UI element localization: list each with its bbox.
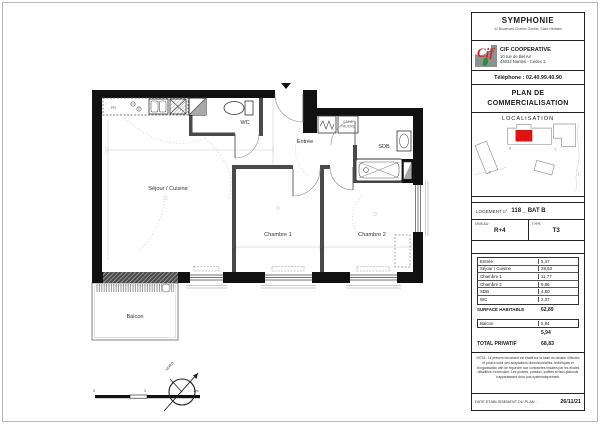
window-sejour <box>186 267 227 289</box>
row-value: 4,80 <box>538 289 578 294</box>
total-value: 68,83 <box>539 341 579 347</box>
site-boundary <box>576 124 579 191</box>
annex-total-value: 5,94 <box>539 330 579 336</box>
bathroom-fixtures <box>356 131 413 183</box>
document-title: PLAN DE COMMERCIALISATION <box>472 85 584 113</box>
areas-table: Entrée 5,47 Séjour / Cuisine 28,63 Chamb… <box>477 257 579 305</box>
table-row: SDB 4,80 <box>478 288 578 296</box>
scale-0: 0 <box>93 389 95 393</box>
level-type-row: NIVEAU : R+4 TYPE : T3 <box>472 220 584 241</box>
niveau-label: NIVEAU : <box>475 222 525 226</box>
building-a-outline <box>475 141 498 174</box>
document-title-line1: PLAN DE <box>512 89 545 98</box>
windows <box>186 181 428 288</box>
label-entree: Entrée <box>297 139 313 145</box>
surface-value: 62,89 <box>539 307 579 313</box>
window-chambre1 <box>261 267 316 289</box>
type-cell: TYPE : T3 <box>528 220 585 240</box>
type-value: T3 <box>532 227 582 234</box>
label-chambre2: Chambre 2 <box>358 232 386 238</box>
window-chambre2 <box>346 267 401 289</box>
total-label: TOTAL PRIVATIF <box>477 341 539 347</box>
row-label: Chambre 2 <box>478 282 538 287</box>
logement-label: LOGEMENT n° <box>476 209 507 214</box>
spacer <box>472 241 584 254</box>
areas-section: Entrée 5,47 Séjour / Cuisine 28,63 Chamb… <box>472 254 584 353</box>
company-address-2: 44032 Nantes - Cedex 1 <box>500 59 551 64</box>
shaft-sdb <box>402 159 413 183</box>
bathtub <box>356 159 402 181</box>
nota-text: NOTA : Le présent document est établi su… <box>472 353 584 394</box>
row-label: SDB <box>478 289 538 294</box>
row-value: 28,63 <box>538 266 578 271</box>
row-value: 5,47 <box>538 259 578 264</box>
kitchen-counter: FR. <box>103 98 188 115</box>
row-label: Chambre 1 <box>478 274 538 279</box>
title-block: SYMPHONIE 41 Boulevard Charles Gautier, … <box>471 12 585 411</box>
fridge-label: FR. <box>111 106 117 110</box>
localisation-title: LOCALISATION <box>472 113 584 122</box>
date-value: 26/11/21 <box>560 399 581 405</box>
label-sejour: Séjour / Cuisine <box>148 186 188 192</box>
project-section: SYMPHONIE 41 Boulevard Charles Gautier, … <box>472 13 584 41</box>
table-row: Balcon 5,94 <box>478 320 578 328</box>
row-value: 11,77 <box>538 274 578 279</box>
balcony <box>92 283 178 340</box>
logement-value: 118 _ BAT B <box>511 208 545 214</box>
localisation-section: LOCALISATION B C A 1 <box>472 113 584 197</box>
surface-label: SURFACE HABITABLE <box>477 307 539 312</box>
cif-logo: Cif <box>475 45 497 67</box>
row-label: Séjour / Cuisine <box>478 266 538 271</box>
project-address: 41 Boulevard Charles Gautier, Saint-Herb… <box>472 27 584 31</box>
niveau-cell: NIVEAU : R+4 <box>472 220 528 240</box>
balcon-value: 5,94 <box>538 321 578 326</box>
kitchen-sink <box>149 99 168 114</box>
company-section: Cif CIF COOPERATIVE 10 rue de Bel Air 44… <box>472 41 584 71</box>
plan-sheet: GAINE PALIÈRE FR. <box>0 0 600 424</box>
building-d-outline <box>534 160 554 175</box>
row-label: Entrée <box>478 259 538 264</box>
entrance-marker <box>281 83 291 89</box>
site-map: B C A 1 <box>472 122 584 192</box>
table-row: Chambre 1 11,77 <box>478 273 578 281</box>
niveau-value: R+4 <box>475 227 525 234</box>
site-label-b: B <box>509 146 512 150</box>
interior-walls <box>189 98 404 272</box>
date-row: DATE ETABLISSEMENT DU PLAN : 26/11/21 <box>472 394 584 409</box>
electrical-symbols <box>125 118 377 250</box>
label-chambre1: Chambre 1 <box>264 232 292 238</box>
wardrobe-chambre2 <box>395 235 410 267</box>
row-label: WC <box>478 297 538 302</box>
north-arrow: NORD <box>164 361 198 411</box>
table-row: WC 2,37 <box>478 296 578 304</box>
exterior-walls <box>92 90 423 283</box>
label-wc: WC <box>240 120 249 126</box>
date-label: DATE ETABLISSEMENT DU PLAN : <box>475 400 537 404</box>
site-label-c: C <box>554 147 557 151</box>
shaft-wc <box>189 98 206 115</box>
label-sdb: SDB <box>378 144 390 150</box>
kitchen-hob <box>170 99 186 114</box>
scale-bar: 0 1 2m <box>93 389 200 398</box>
company-name: CIF COOPERATIVE <box>500 47 551 54</box>
north-label: NORD <box>165 361 175 372</box>
entry-closet: GAINE PALIÈRE <box>318 116 358 133</box>
phone-row: Téléphone : 02.40.99.40.90 <box>472 71 584 85</box>
annex-total-row: 5,94 <box>477 328 579 338</box>
balcon-box: Balcon 5,94 <box>477 319 579 329</box>
project-name: SYMPHONIE <box>472 16 584 25</box>
table-row: Chambre 2 9,86 <box>478 281 578 289</box>
surface-habitable-row: SURFACE HABITABLE 62,89 <box>477 305 579 315</box>
row-value: 9,86 <box>538 282 578 287</box>
bay-window <box>103 272 178 283</box>
toilet <box>224 101 253 115</box>
label-balcon: Balcon <box>126 314 143 320</box>
building-c-outline <box>553 124 575 146</box>
site-label-1: 1 <box>578 172 580 176</box>
document-title-line2: COMMERCIALISATION <box>487 99 568 108</box>
table-row: Séjour / Cuisine 28,63 <box>478 266 578 274</box>
washbasin <box>397 131 411 151</box>
type-label: TYPE : <box>532 222 582 226</box>
row-value: 2,37 <box>538 297 578 302</box>
scale-1: 1 <box>144 389 146 393</box>
total-privatif-row: TOTAL PRIVATIF 68,83 <box>477 338 579 349</box>
logement-row: LOGEMENT n° 118 _ BAT B <box>472 203 584 220</box>
highlighted-unit <box>516 130 532 141</box>
table-row: Entrée 5,47 <box>478 258 578 266</box>
balcon-label: Balcon <box>478 321 538 326</box>
window-chambre2-east <box>413 181 428 236</box>
